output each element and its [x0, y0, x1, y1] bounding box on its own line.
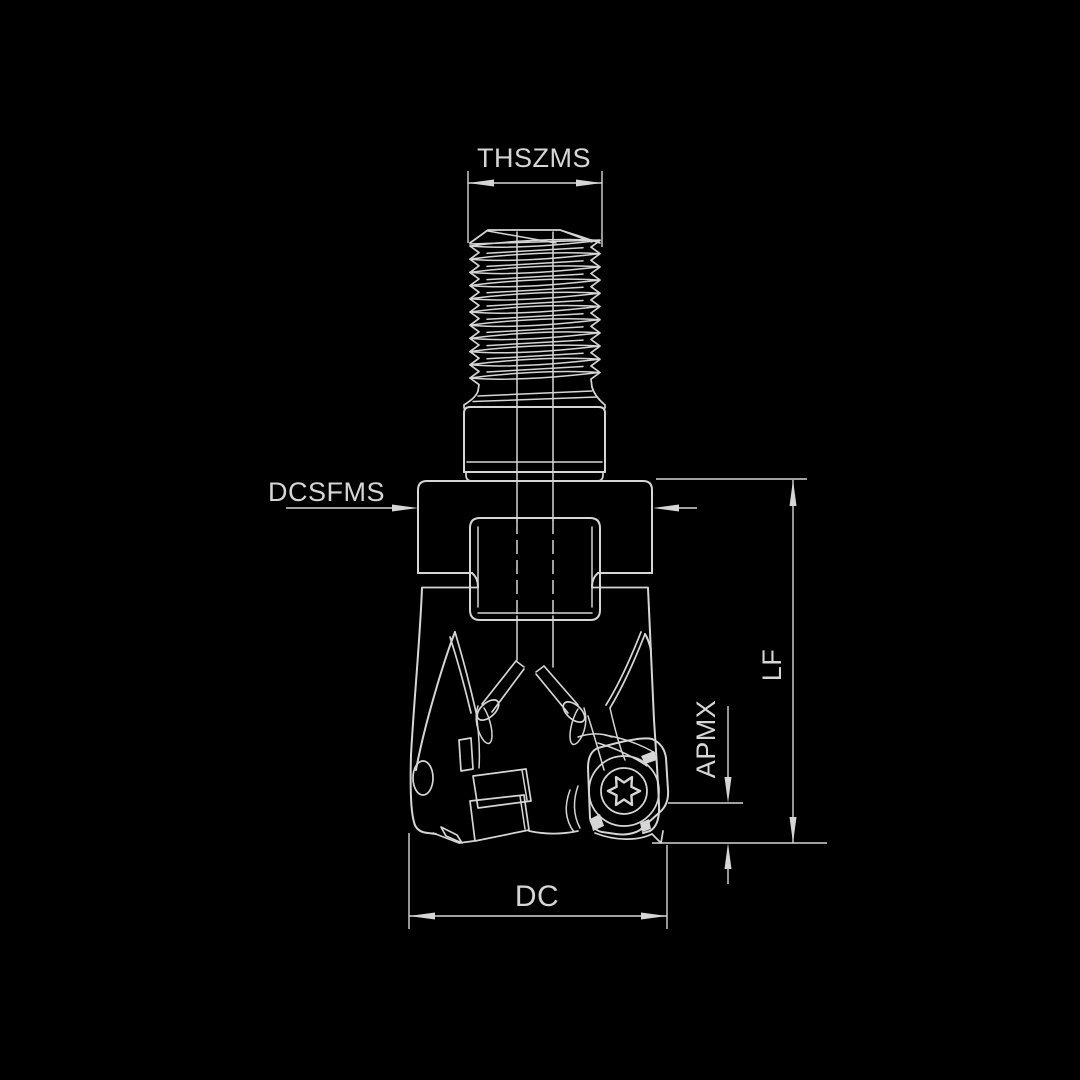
left-clamp-block — [459, 738, 473, 771]
right-insert-cylinder — [536, 666, 604, 770]
right-insert-front-view — [566, 734, 668, 835]
label-shank-diameter: DCSFMS — [268, 477, 385, 507]
head-right-edge — [643, 588, 659, 833]
neck-section — [464, 407, 605, 481]
thread-runout-flare — [464, 387, 605, 408]
dim-cutting-diameter: DC — [409, 833, 667, 929]
left-flute-peak — [416, 632, 479, 770]
body-section — [418, 481, 652, 620]
left-flank-details — [413, 738, 531, 843]
dim-functional-length: LF — [652, 479, 827, 843]
dim-max-cutting-depth: APMX — [668, 700, 743, 884]
end-mill-technical-drawing: THSZMS DCSFMS LF APMX DC — [0, 0, 1080, 1080]
thread-right-edge — [591, 241, 600, 388]
head-left-edge — [411, 588, 436, 834]
label-thread-size: THSZMS — [477, 143, 591, 173]
label-functional-length: LF — [757, 649, 787, 682]
label-max-cutting-depth: APMX — [691, 700, 721, 779]
thread-section — [464, 230, 605, 408]
collar — [466, 472, 603, 481]
label-cutting-diameter: DC — [515, 880, 559, 913]
drawing-canvas: THSZMS DCSFMS LF APMX DC — [0, 0, 1080, 1080]
left-insert-cylinder — [474, 661, 524, 743]
body-front-window — [470, 518, 600, 620]
torx-socket-icon — [608, 777, 640, 805]
center-bore-lines — [517, 232, 553, 667]
dim-shank-diameter: DCSFMS — [268, 477, 697, 512]
cutter-head — [411, 588, 668, 843]
thread-left-edge — [470, 246, 479, 391]
